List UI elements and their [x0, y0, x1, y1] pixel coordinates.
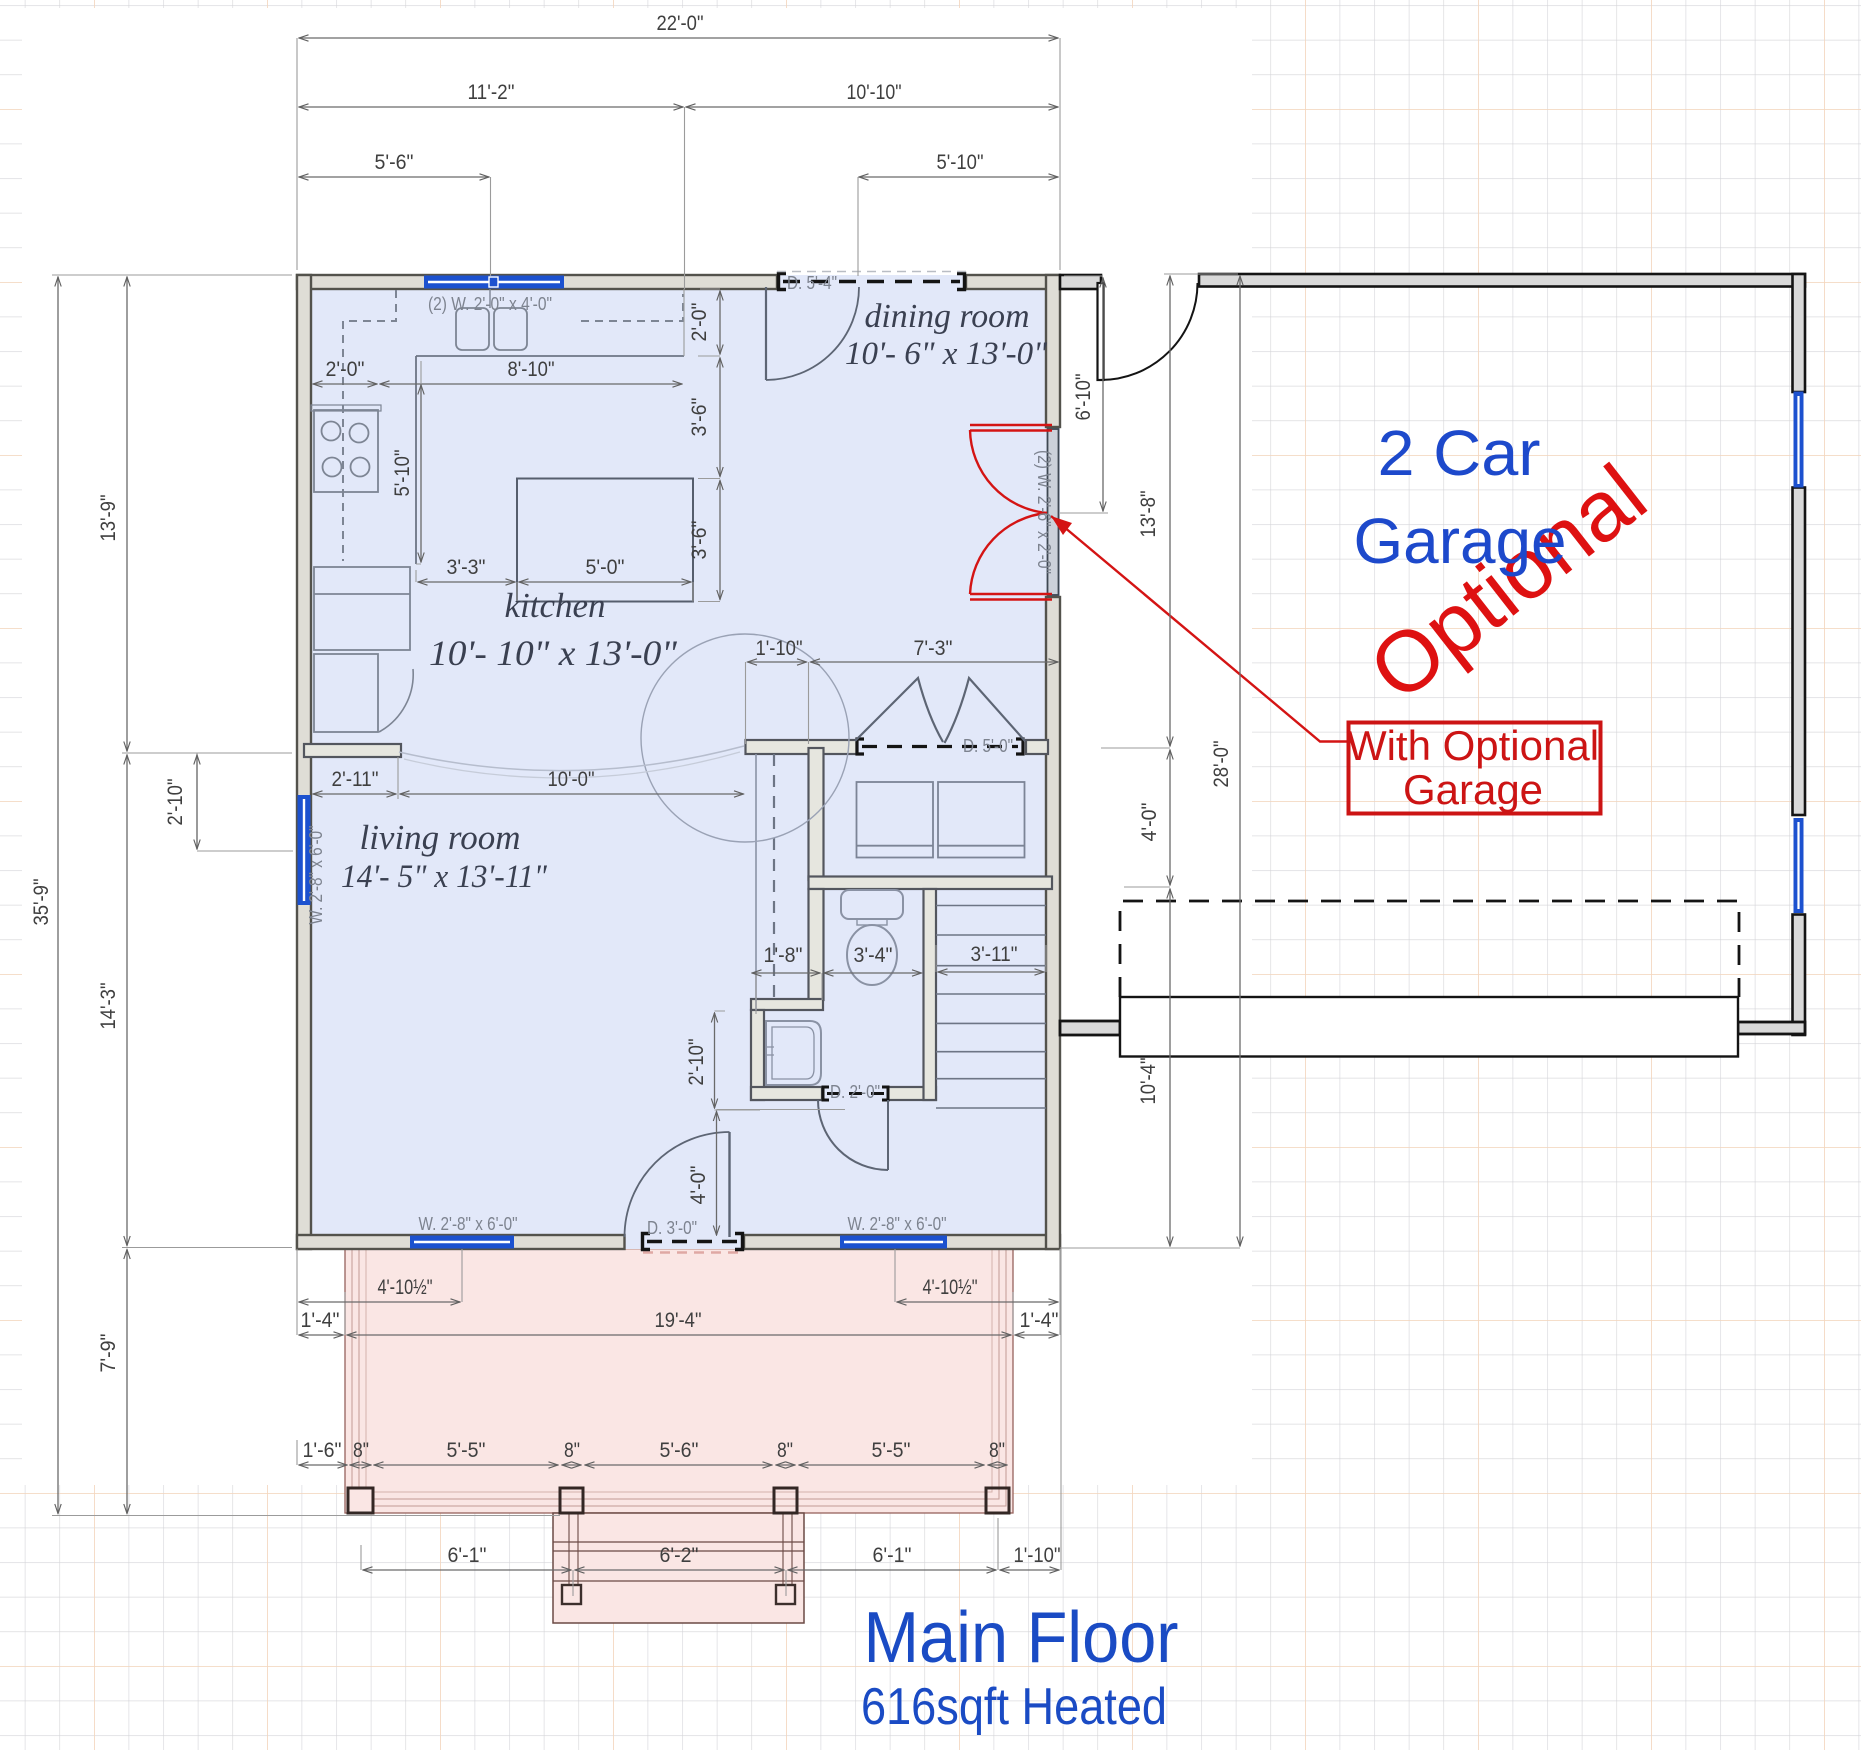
- svg-text:8": 8": [777, 1439, 793, 1462]
- svg-text:W. 2'-8" x 6'-0": W. 2'-8" x 6'-0": [848, 1214, 947, 1234]
- svg-text:10'-10": 10'-10": [847, 81, 902, 104]
- svg-text:5'-10": 5'-10": [937, 151, 984, 174]
- svg-text:8": 8": [989, 1439, 1005, 1462]
- svg-text:2 Car: 2 Car: [1378, 417, 1541, 489]
- svg-text:D. 5'-4": D. 5'-4": [787, 273, 837, 293]
- svg-text:13'-8": 13'-8": [1137, 491, 1160, 538]
- svg-text:W. 2'-8" x 6'-0": W. 2'-8" x 6'-0": [306, 826, 326, 925]
- svg-text:22'-0": 22'-0": [657, 12, 704, 35]
- svg-text:Garage: Garage: [1354, 505, 1567, 577]
- svg-text:6'-2": 6'-2": [660, 1544, 699, 1567]
- svg-text:10'- 6" x 13'-0": 10'- 6" x 13'-0": [845, 336, 1047, 372]
- svg-text:7'-3": 7'-3": [914, 637, 953, 660]
- svg-text:W. 2'-8" x 6'-0": W. 2'-8" x 6'-0": [419, 1214, 518, 1234]
- svg-text:8": 8": [353, 1439, 369, 1462]
- svg-text:D. 2'-0": D. 2'-0": [830, 1082, 880, 1102]
- svg-text:5'-0": 5'-0": [586, 556, 625, 579]
- svg-text:14'-3": 14'-3": [97, 983, 120, 1030]
- svg-text:5'-10": 5'-10": [391, 450, 414, 497]
- svg-text:5'-6": 5'-6": [660, 1439, 699, 1462]
- svg-text:4'-0": 4'-0": [687, 1166, 710, 1205]
- svg-text:1'-4": 1'-4": [1020, 1309, 1059, 1332]
- svg-text:3'-3": 3'-3": [447, 556, 486, 579]
- svg-text:10'- 10" x 13'-0": 10'- 10" x 13'-0": [429, 633, 678, 673]
- svg-text:kitchen: kitchen: [504, 586, 605, 625]
- svg-text:5'-5": 5'-5": [872, 1439, 911, 1462]
- svg-text:2'-0": 2'-0": [688, 303, 711, 342]
- svg-text:13'-9": 13'-9": [97, 495, 120, 542]
- svg-text:5'-6": 5'-6": [375, 151, 414, 174]
- svg-text:dining room: dining room: [865, 298, 1030, 335]
- svg-text:6'-10": 6'-10": [1072, 374, 1095, 421]
- svg-text:2'-11": 2'-11": [332, 768, 379, 791]
- svg-text:4'-10½": 4'-10½": [378, 1276, 433, 1299]
- svg-text:10'-4": 10'-4": [1137, 1058, 1160, 1105]
- svg-text:3'-4": 3'-4": [854, 944, 893, 967]
- svg-text:4'-0": 4'-0": [1138, 803, 1161, 842]
- svg-text:living room: living room: [359, 818, 520, 857]
- svg-text:With Optional: With Optional: [1347, 722, 1599, 769]
- svg-text:8": 8": [564, 1439, 580, 1462]
- svg-text:2'-10": 2'-10": [164, 779, 187, 826]
- svg-text:8'-10": 8'-10": [508, 358, 555, 381]
- svg-text:2'-10": 2'-10": [685, 1039, 708, 1086]
- svg-text:1'-4": 1'-4": [301, 1309, 340, 1332]
- svg-text:1'-8": 1'-8": [764, 944, 803, 967]
- svg-text:28'-0": 28'-0": [1210, 741, 1233, 788]
- svg-text:14'- 5" x 13'-11": 14'- 5" x 13'-11": [341, 859, 547, 895]
- svg-text:3'-6": 3'-6": [688, 398, 711, 437]
- svg-text:11'-2": 11'-2": [468, 81, 515, 104]
- svg-text:Main Floor: Main Floor: [864, 1598, 1179, 1678]
- svg-text:6'-1": 6'-1": [873, 1544, 912, 1567]
- svg-text:1'-10": 1'-10": [756, 637, 803, 660]
- svg-text:(2) W. 2'-6" x 2'-0": (2) W. 2'-6" x 2'-0": [1034, 450, 1054, 574]
- svg-text:35'-9": 35'-9": [30, 879, 53, 926]
- svg-text:5'-5": 5'-5": [447, 1439, 486, 1462]
- svg-text:616sqft Heated: 616sqft Heated: [861, 1678, 1167, 1736]
- svg-text:10'-0": 10'-0": [548, 768, 595, 791]
- svg-text:3'-6": 3'-6": [688, 521, 711, 560]
- svg-text:7'-9": 7'-9": [97, 1334, 120, 1373]
- svg-text:1'-10": 1'-10": [1014, 1544, 1061, 1567]
- svg-text:D. 3'-0": D. 3'-0": [647, 1218, 697, 1238]
- svg-text:D. 5'-0": D. 5'-0": [963, 736, 1013, 756]
- svg-text:Garage: Garage: [1403, 766, 1543, 813]
- svg-text:(2) W. 2'-0" x 4'-0": (2) W. 2'-0" x 4'-0": [428, 294, 552, 314]
- svg-text:2'-0": 2'-0": [326, 358, 365, 381]
- svg-text:4'-10½": 4'-10½": [923, 1276, 978, 1299]
- svg-text:3'-11": 3'-11": [971, 943, 1018, 966]
- svg-text:19'-4": 19'-4": [655, 1309, 702, 1332]
- svg-text:6'-1": 6'-1": [448, 1544, 487, 1567]
- svg-text:1'-6": 1'-6": [303, 1439, 342, 1462]
